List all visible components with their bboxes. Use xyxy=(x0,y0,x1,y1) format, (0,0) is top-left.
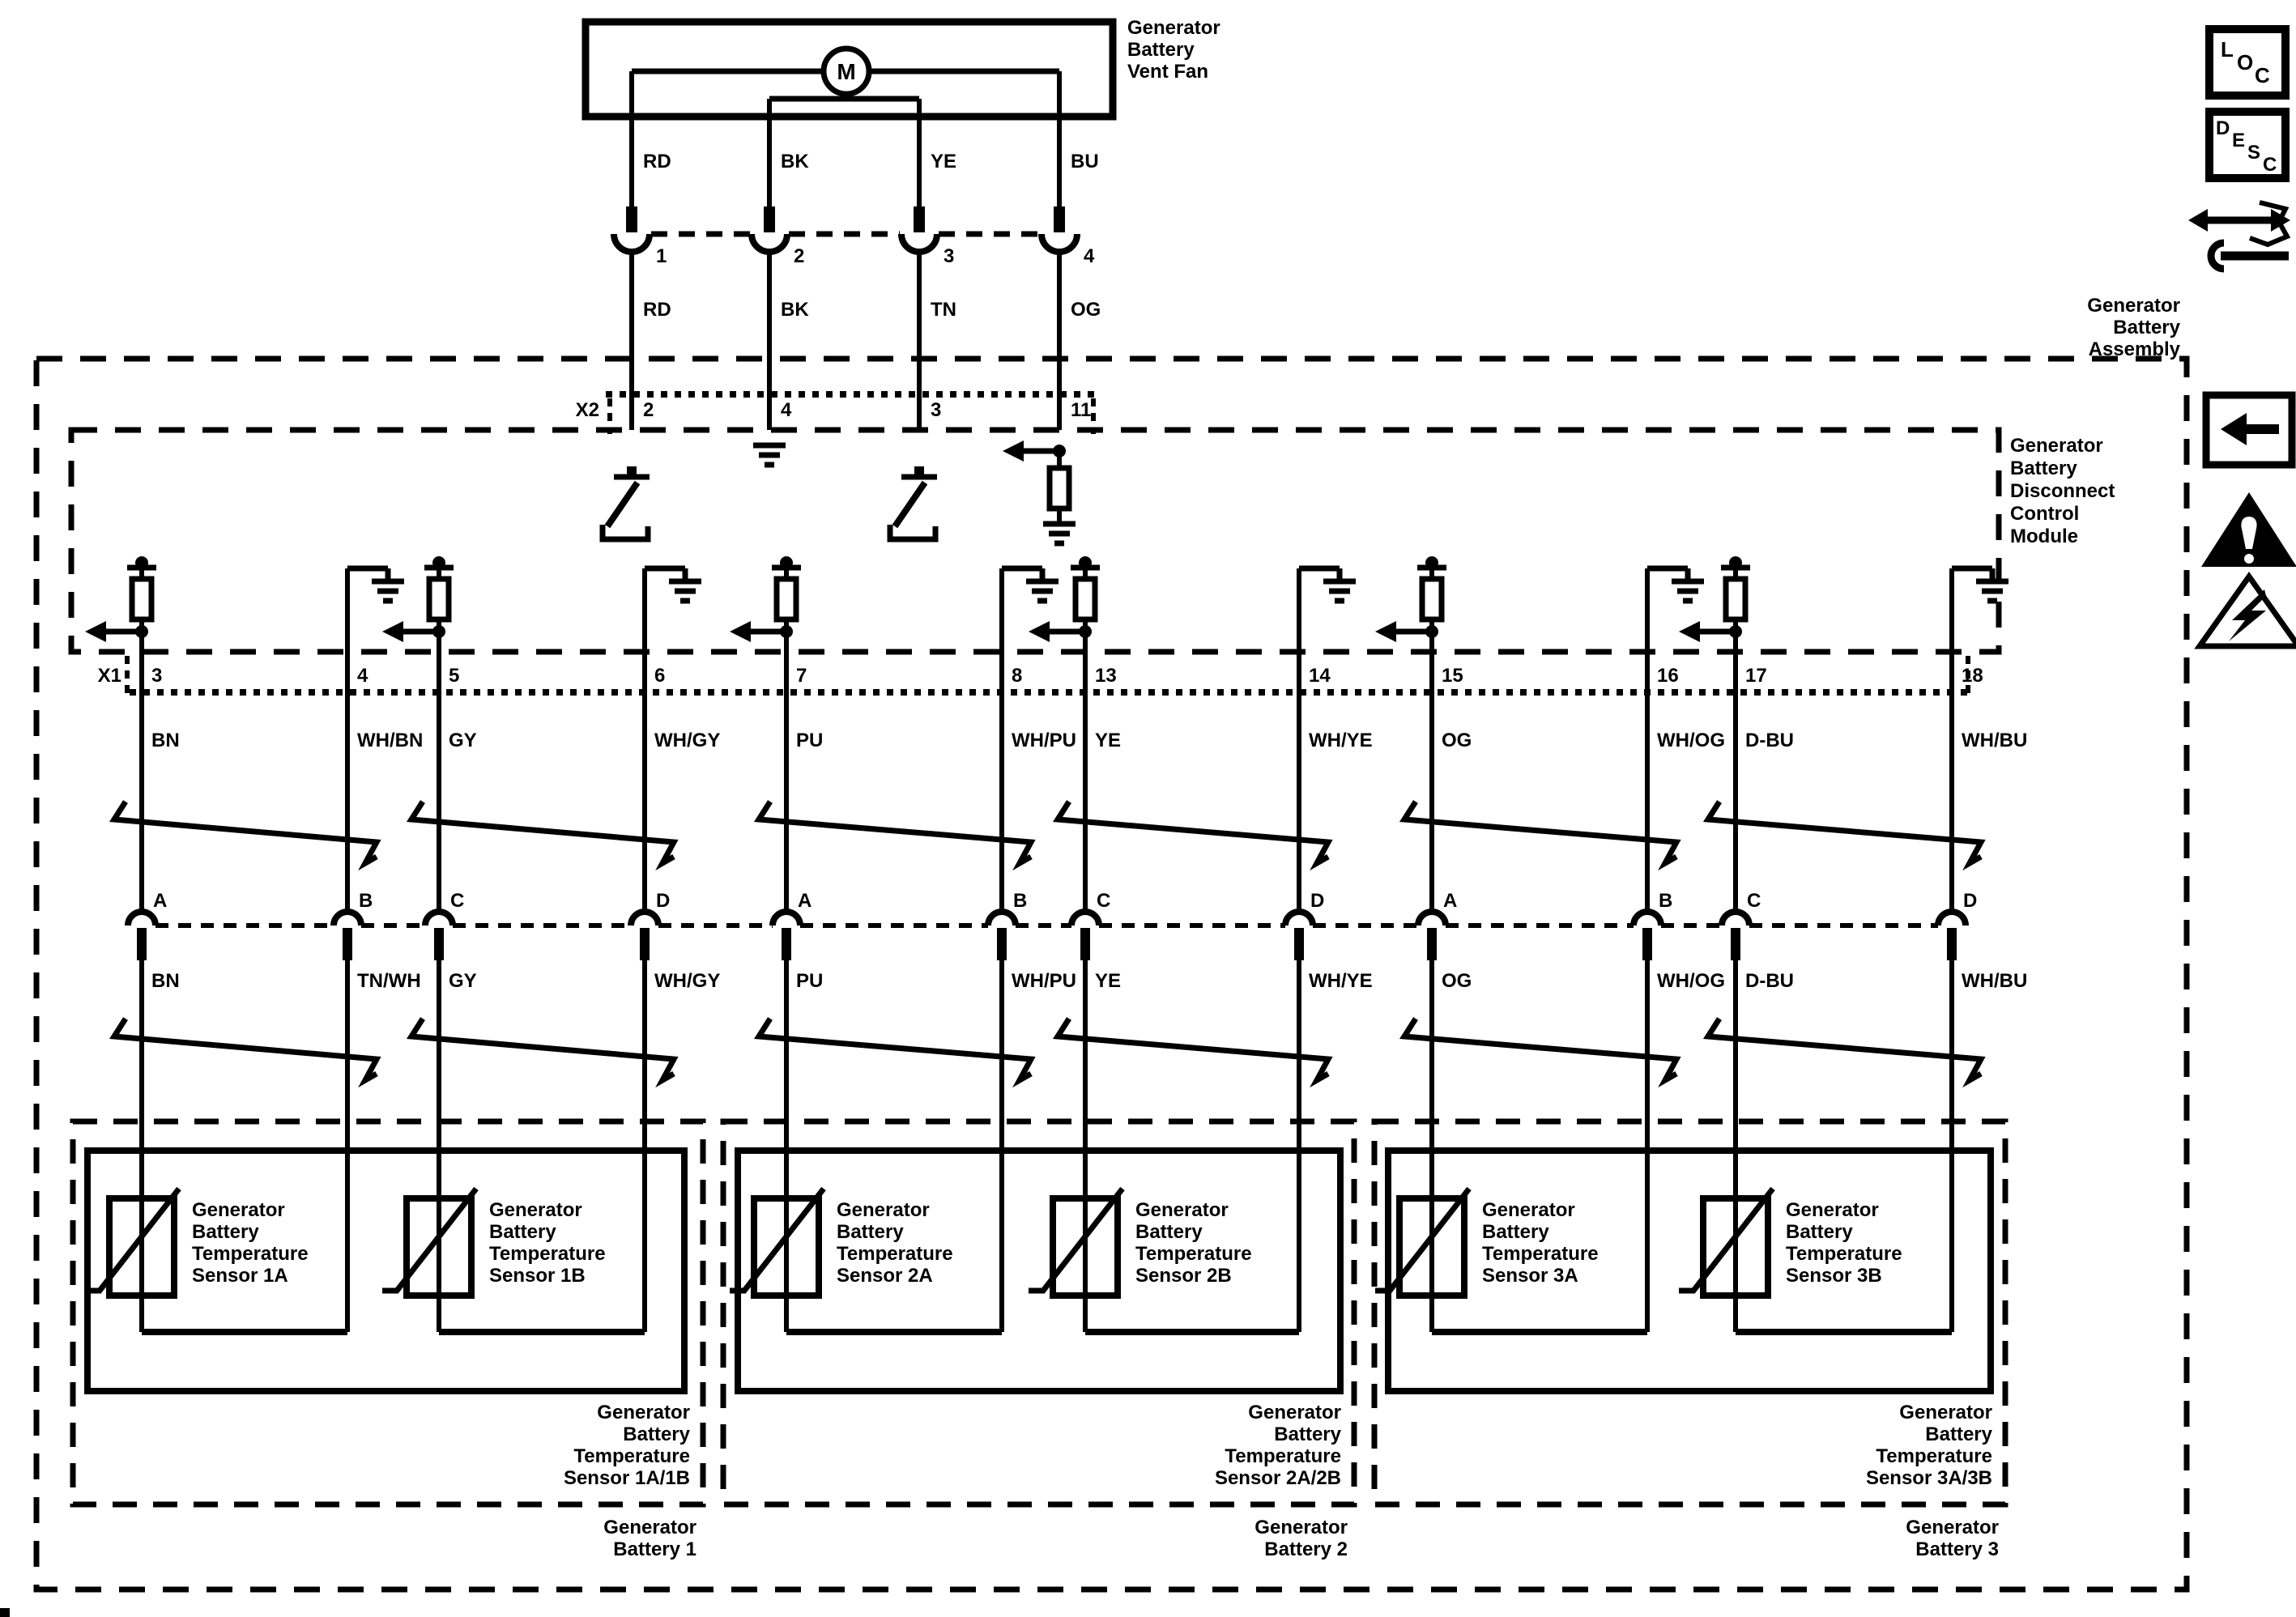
sensor-group-label: Battery xyxy=(623,1423,690,1445)
sensor-label: Temperature xyxy=(1482,1243,1599,1265)
voltage-supply-icon xyxy=(127,556,156,579)
wire-color-label: D-BU xyxy=(1745,730,1794,751)
inline-connector-icon xyxy=(752,234,787,252)
wire-color-label: WH/PU xyxy=(1012,730,1076,751)
vent-fan-label: Generator xyxy=(1127,17,1220,39)
wire-color-label: BN xyxy=(151,970,180,992)
sensor-label: Sensor 2A xyxy=(837,1265,933,1287)
battery-name-label: Generator xyxy=(603,1517,696,1538)
disconnect-switch-icon xyxy=(603,466,650,539)
sensor-group-label: Temperature xyxy=(573,1445,690,1467)
sensor-label: Sensor 1A xyxy=(192,1265,288,1287)
sensor-label: Battery xyxy=(192,1221,259,1243)
resistor-icon xyxy=(777,579,796,619)
sensor-label: Battery xyxy=(837,1221,904,1243)
sensor-label: Battery xyxy=(489,1221,556,1243)
ground-icon xyxy=(1043,524,1076,543)
wire-color-label: WH/GY xyxy=(654,970,720,992)
sensor-pin-letter: D xyxy=(1310,890,1324,912)
x1-pin-number: 6 xyxy=(654,665,665,687)
sensor-pin-letter: D xyxy=(656,890,670,912)
signal-arrow-icon xyxy=(382,621,439,642)
thermistor-icon xyxy=(1679,1189,1773,1296)
desc-letter: D xyxy=(2216,117,2230,139)
ground-icon xyxy=(1672,581,1704,601)
wire-color-label: BK xyxy=(781,151,809,172)
battery-box xyxy=(738,1151,1340,1391)
switch-blade xyxy=(607,483,637,526)
x1-pin-number: 16 xyxy=(1657,665,1679,687)
inline-connector-icon xyxy=(1285,912,1313,926)
ground-icon xyxy=(1323,581,1356,601)
switch-contact xyxy=(627,466,637,474)
wire-color-label: WH/GY xyxy=(654,730,720,751)
sensor-pin-letter: A xyxy=(1443,890,1457,912)
wire-color-label: YE xyxy=(1095,970,1121,992)
x1-pin-number: 5 xyxy=(449,665,459,687)
sensor-label: Battery xyxy=(1482,1221,1549,1243)
sensor-label: Temperature xyxy=(489,1243,606,1265)
arrow-head xyxy=(730,621,751,642)
assembly-label: Battery xyxy=(2113,317,2180,338)
wire-color-label: WH/BU xyxy=(1962,730,2027,751)
wire-color-label: OG xyxy=(1071,299,1101,321)
sensor-pin-letter: C xyxy=(1747,890,1761,912)
wire-color-label: TN xyxy=(931,299,956,321)
twisted-pair-icon xyxy=(411,802,674,863)
inline-connector-icon xyxy=(1071,912,1099,926)
ground-icon xyxy=(372,581,404,601)
sensor-label: Generator xyxy=(837,1199,930,1221)
wire-color-label: RD xyxy=(643,299,671,321)
sensor-pin-letter: C xyxy=(450,890,464,912)
inline-connector-icon xyxy=(1418,912,1446,926)
inline-connector-icon xyxy=(1634,912,1661,926)
wire-color-label: PU xyxy=(796,970,823,992)
warning-icon[interactable] xyxy=(2201,492,2296,567)
back-arrow-shaft xyxy=(2242,424,2279,434)
wire-color-label: WH/YE xyxy=(1309,730,1373,751)
desc-letter: E xyxy=(2232,130,2245,151)
connector-pin-number: 3 xyxy=(944,245,954,267)
inline-connector-icon xyxy=(631,912,658,926)
sensor-label: Temperature xyxy=(192,1243,309,1265)
sensor-label: Sensor 3A xyxy=(1482,1265,1578,1287)
voltage-supply-icon xyxy=(424,556,454,579)
signal-arrow-icon xyxy=(1029,621,1085,642)
loc-letter: O xyxy=(2237,50,2253,74)
sensor-label: Battery xyxy=(1135,1221,1203,1243)
arrow-head xyxy=(85,621,106,642)
twisted-pair-icon xyxy=(1404,802,1676,863)
twisted-pair-icon xyxy=(411,1019,674,1080)
back-button[interactable] xyxy=(2206,395,2292,465)
signal-arrow-icon xyxy=(85,621,142,642)
connector-pin-number: 2 xyxy=(794,245,804,267)
ground-icon xyxy=(669,581,701,601)
sensor-group-label: Generator xyxy=(1899,1402,1992,1423)
disconnect-control-module-box xyxy=(71,430,1999,652)
arrow-head-left xyxy=(2188,209,2208,232)
x1-pin-number: 13 xyxy=(1095,665,1117,687)
x1-pin-number: 15 xyxy=(1442,665,1463,687)
switch-contact xyxy=(914,466,924,474)
wire-color-label: PU xyxy=(796,730,823,751)
sensor-group-label: Battery xyxy=(1925,1423,1992,1445)
inline-connector-icon xyxy=(614,234,650,252)
signal-arrow-icon xyxy=(1375,621,1432,642)
sensor-pin-letter: A xyxy=(153,890,167,912)
assembly-label: Assembly xyxy=(2089,338,2181,360)
wire-color-label: D-BU xyxy=(1745,970,1794,992)
wire-color-label: YE xyxy=(931,151,956,172)
battery-name-label: Generator xyxy=(1254,1517,1348,1538)
ground-icon xyxy=(1026,581,1059,601)
battery-box xyxy=(1388,1151,1991,1391)
sensor-group-label: Battery xyxy=(1274,1423,1341,1445)
sensor-pin-letter: B xyxy=(1013,890,1027,912)
module-label: Disconnect xyxy=(2010,480,2115,502)
ground-icon xyxy=(1976,581,2008,601)
sensor-label: Generator xyxy=(489,1199,582,1221)
inline-connector-icon xyxy=(425,912,453,926)
sensor-group-label: Sensor 3A/3B xyxy=(1866,1467,1992,1489)
wire-color-label: WH/BN xyxy=(357,730,423,751)
resistor-icon xyxy=(1050,468,1069,509)
arrow-head xyxy=(1679,621,1700,642)
x2-pin-number: 2 xyxy=(643,399,654,421)
sensor-group-label: Sensor 2A/2B xyxy=(1215,1467,1341,1489)
twisted-pair-icon xyxy=(1404,1019,1676,1080)
x1-pin-number: 17 xyxy=(1745,665,1767,687)
x1-pin-number: 7 xyxy=(796,665,807,687)
arrow-head xyxy=(1003,440,1024,462)
desc-letter: C xyxy=(2263,154,2277,176)
x1-connector-label: X1 xyxy=(98,665,121,687)
battery-name-label: Battery 3 xyxy=(1915,1538,1999,1560)
wire-color-label: OG xyxy=(1442,730,1472,751)
x1-pin-number: 8 xyxy=(1012,665,1022,687)
inline-connector-icon xyxy=(773,912,800,926)
voltage-supply-icon xyxy=(1721,556,1750,579)
page-edge-artifact xyxy=(0,1608,10,1617)
sensor-group-label: Sensor 1A/1B xyxy=(564,1467,690,1489)
thermistor-icon xyxy=(730,1189,824,1296)
twisted-pair-icon xyxy=(1708,802,1981,863)
sensor-pin-letter: A xyxy=(798,890,811,912)
sensor-pin-letter: B xyxy=(1659,890,1672,912)
thermistor-icon xyxy=(85,1189,179,1296)
battery-name-label: Battery 1 xyxy=(613,1538,696,1560)
inline-connector-icon xyxy=(901,234,937,252)
disconnect-switch-icon xyxy=(890,466,937,539)
sensor-label: Sensor 2B xyxy=(1135,1265,1232,1287)
sensor-label: Battery xyxy=(1786,1221,1853,1243)
arrow-head xyxy=(1375,621,1396,642)
wire-color-label: BN xyxy=(151,730,180,751)
wire-color-label: WH/OG xyxy=(1657,730,1725,751)
resistor-icon xyxy=(1726,579,1745,619)
module-label: Module xyxy=(2010,526,2078,547)
wire-color-label: WH/OG xyxy=(1657,970,1725,992)
sensor-group-label: Generator xyxy=(597,1402,690,1423)
x1-pin-number: 18 xyxy=(1962,665,1983,687)
sensor-label: Temperature xyxy=(1135,1243,1252,1265)
x1-pin-number: 4 xyxy=(357,665,368,687)
sensor-group-label: Generator xyxy=(1248,1402,1341,1423)
service-procedure-icon[interactable] xyxy=(2188,209,2290,256)
inline-connector-icon xyxy=(1722,912,1749,926)
sensor-label: Generator xyxy=(1786,1199,1879,1221)
twisted-pair-icon xyxy=(1058,1019,1328,1080)
loc-letter: C xyxy=(2255,63,2270,87)
voltage-supply-icon xyxy=(1071,556,1100,579)
wire-color-label: GY xyxy=(449,730,477,751)
sensor-label: Sensor 1B xyxy=(489,1265,586,1287)
x2-pin-number: 3 xyxy=(931,399,941,421)
twisted-pair-icon xyxy=(759,802,1031,863)
sensor-label: Generator xyxy=(1482,1199,1575,1221)
sensor-label: Temperature xyxy=(837,1243,953,1265)
signal-arrow-icon xyxy=(730,621,786,642)
wire-color-label: TN/WH xyxy=(357,970,421,992)
battery-name-label: Generator xyxy=(1906,1517,1999,1538)
arrow-head xyxy=(382,621,403,642)
resistor-icon xyxy=(429,579,449,619)
connector-pin-number: 1 xyxy=(656,245,667,267)
inline-connector-icon xyxy=(128,912,155,926)
voltage-supply-icon xyxy=(772,556,801,579)
sensor-label: Temperature xyxy=(1786,1243,1902,1265)
sensor-group-label: Temperature xyxy=(1876,1445,1992,1467)
sensor-pin-letter: C xyxy=(1097,890,1110,912)
wire-color-label: BK xyxy=(781,299,809,321)
sensor-label: Generator xyxy=(1135,1199,1229,1221)
battery-name-label: Battery 2 xyxy=(1264,1538,1348,1560)
x1-pin-number: 3 xyxy=(151,665,162,687)
electrical-hazard-icon[interactable] xyxy=(2200,577,2296,646)
twisted-pair-icon xyxy=(114,1019,377,1080)
twisted-pair-icon xyxy=(759,1019,1031,1080)
wiring-diagram: MGeneratorBatteryVent FanRD1RD2BK2BK4YE3… xyxy=(0,0,2296,1617)
connector-pin-number: 4 xyxy=(1084,245,1095,267)
sensor-label: Generator xyxy=(192,1199,285,1221)
inline-connector-icon xyxy=(1938,912,1966,926)
wire-color-label: BU xyxy=(1071,151,1099,172)
wire-color-label: OG xyxy=(1442,970,1472,992)
sensor-pin-letter: B xyxy=(359,890,373,912)
ground-icon xyxy=(753,445,786,465)
exclamation-dot xyxy=(2244,554,2254,564)
resistor-icon xyxy=(132,579,151,619)
module-label: Battery xyxy=(2010,457,2077,479)
switch-blade xyxy=(895,483,925,526)
signal-arrow-icon xyxy=(1679,621,1736,642)
module-label: Control xyxy=(2010,503,2079,525)
x2-pin-number: 4 xyxy=(781,399,792,421)
sensor-pin-letter: D xyxy=(1963,890,1977,912)
vent-fan-label: Battery xyxy=(1127,39,1195,61)
x2-pin-number: 11 xyxy=(1071,399,1091,421)
wire-color-label: WH/PU xyxy=(1012,970,1076,992)
inline-connector-icon xyxy=(334,912,361,926)
wire-color-label: YE xyxy=(1095,730,1121,751)
twisted-pair-icon xyxy=(1708,1019,1981,1080)
sensor-group-label: Temperature xyxy=(1225,1445,1341,1467)
thermistor-icon xyxy=(382,1189,476,1296)
wire-color-label: GY xyxy=(449,970,477,992)
x1-pin-number: 14 xyxy=(1309,665,1331,687)
resistor-icon xyxy=(1422,579,1442,619)
signal-arrow-icon xyxy=(1003,440,1059,462)
desc-letter: S xyxy=(2247,142,2260,164)
voltage-supply-icon xyxy=(1417,556,1446,579)
module-label: Generator xyxy=(2010,435,2103,457)
resistor-icon xyxy=(1076,579,1095,619)
loc-letter: L xyxy=(2221,37,2234,62)
wire-color-label: RD xyxy=(643,151,671,172)
arrow-head xyxy=(1029,621,1050,642)
inline-connector-icon xyxy=(1042,234,1077,252)
twisted-pair-icon xyxy=(114,802,377,863)
inline-connector-icon xyxy=(988,912,1016,926)
wire-color-label: WH/YE xyxy=(1309,970,1373,992)
assembly-label: Generator xyxy=(2087,295,2180,317)
motor-label: M xyxy=(837,59,855,84)
wire-color-label: WH/BU xyxy=(1962,970,2027,992)
vent-fan-label: Vent Fan xyxy=(1127,61,1208,83)
twisted-pair-icon xyxy=(1058,802,1328,863)
sensor-label: Sensor 3B xyxy=(1786,1265,1882,1287)
x2-connector-label: X2 xyxy=(576,399,599,421)
thermistor-icon xyxy=(1029,1189,1122,1296)
